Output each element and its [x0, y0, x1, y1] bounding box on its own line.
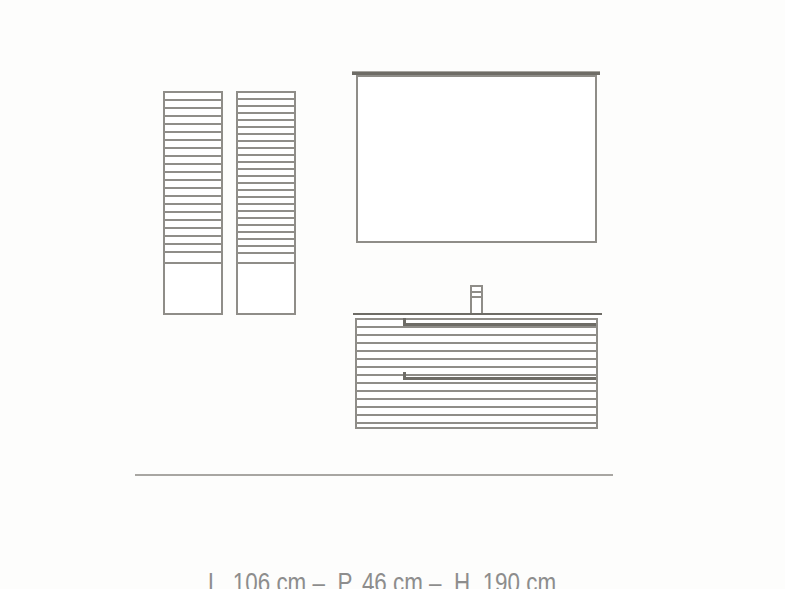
cabinet-slatted-front [238, 93, 294, 256]
divider-line [135, 474, 613, 476]
drawer-handle-notch [403, 318, 406, 326]
bathroom-furniture-dimension-diagram: L. 106 cm – P. 46 cm – H. 190 cm L. 25+2… [0, 0, 785, 589]
drawer-groove-top [403, 323, 596, 326]
dimensions-caption: L. 106 cm – P. 46 cm – H. 190 cm L. 25+2… [126, 508, 638, 589]
cabinet-plain-door [238, 262, 294, 313]
mirror [356, 75, 597, 243]
cabinet-slatted-front [165, 93, 221, 256]
faucet [470, 285, 483, 314]
dimensions-line-1: L. 106 cm – P. 46 cm – H. 190 cm [126, 568, 638, 589]
drawer-groove-bottom [403, 377, 596, 380]
vanity-unit [355, 318, 598, 429]
tall-column-cabinet-right [236, 91, 296, 315]
drawer-handle-notch [403, 372, 406, 380]
faucet-detail-line [472, 296, 481, 298]
faucet-detail-line [472, 291, 481, 293]
tall-column-cabinet-left [163, 91, 223, 315]
cabinet-plain-door [165, 262, 221, 313]
